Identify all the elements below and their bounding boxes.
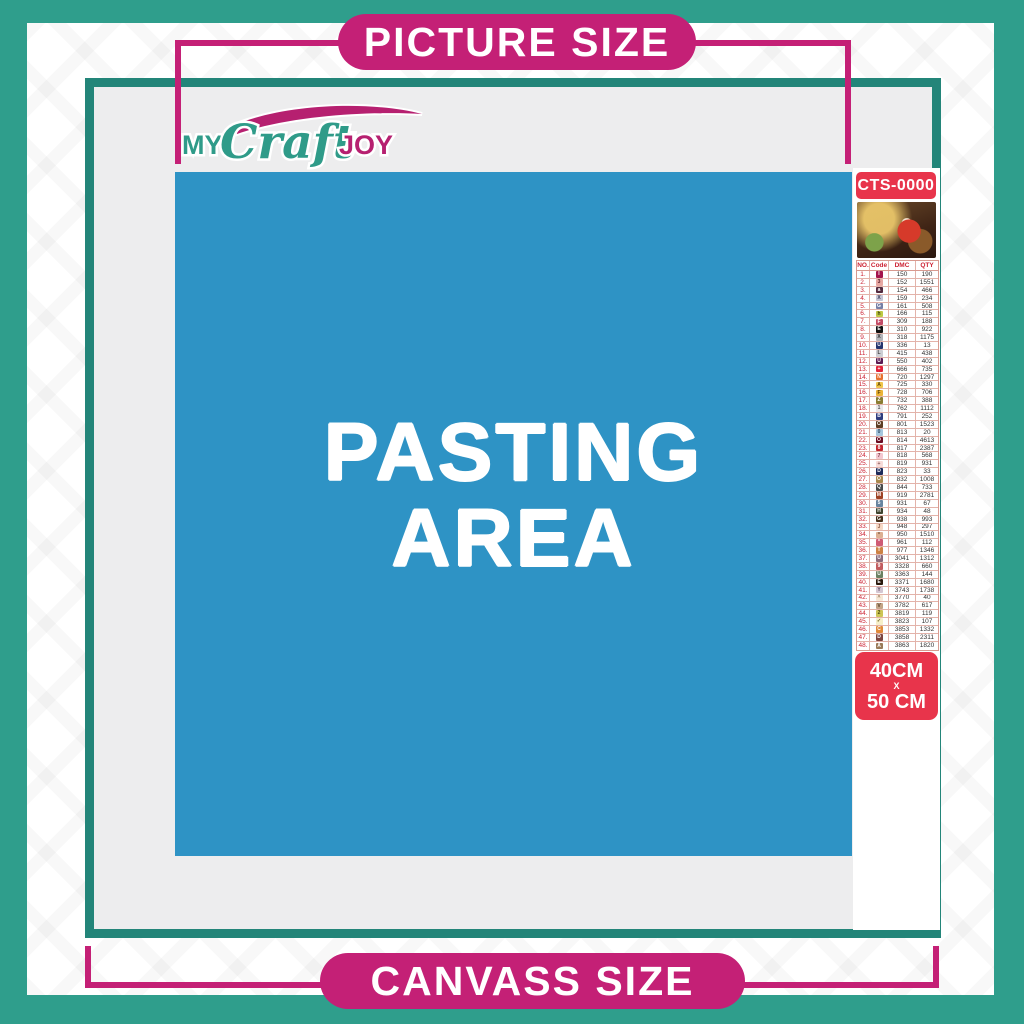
- quantity: 1346: [916, 547, 938, 554]
- color-code-cell: h: [870, 310, 889, 317]
- dmc-table-row: 5.G161508: [857, 303, 938, 311]
- dmc-number: 961: [889, 539, 916, 546]
- dmc-table-row: 13.+666735: [857, 366, 938, 374]
- dmc-table-row: 44.23819119: [857, 610, 938, 618]
- header-no: NO.: [857, 261, 870, 270]
- quantity: 115: [916, 310, 938, 317]
- row-number: 39.: [857, 571, 870, 578]
- quantity: 2387: [916, 445, 938, 452]
- color-symbol-chip: Y: [876, 587, 883, 594]
- color-symbol-chip: ✓: [876, 618, 883, 625]
- color-code-cell: V: [870, 602, 889, 609]
- color-symbol-chip: *: [876, 532, 883, 539]
- color-symbol-chip: U: [876, 571, 883, 578]
- color-symbol-chip: A: [876, 382, 883, 389]
- dmc-table-row: 46.C38531332: [857, 626, 938, 634]
- color-symbol-chip: 2: [876, 610, 883, 617]
- color-symbol-chip: h: [876, 311, 883, 318]
- row-number: 9.: [857, 334, 870, 341]
- row-number: 41.: [857, 587, 870, 594]
- color-code-cell: I: [870, 271, 889, 278]
- picture-size-banner: PICTURE SIZE: [338, 14, 696, 70]
- row-number: 44.: [857, 610, 870, 617]
- size-line1: 40CM: [870, 661, 923, 681]
- dmc-number: 3371: [889, 579, 916, 586]
- color-symbol-chip: 7: [876, 453, 883, 460]
- dmc-number: 725: [889, 381, 916, 388]
- color-code-cell: Z: [870, 397, 889, 404]
- color-symbol-chip: E: [876, 579, 883, 586]
- row-number: 16.: [857, 389, 870, 396]
- color-symbol-chip: U: [876, 342, 883, 349]
- quantity: 735: [916, 366, 938, 373]
- row-number: 5.: [857, 303, 870, 310]
- dmc-table-row: 1.I150190: [857, 271, 938, 279]
- dmc-number: 814: [889, 437, 916, 444]
- product-code-badge: CTS-0000: [856, 172, 936, 199]
- quantity: 508: [916, 303, 938, 310]
- dmc-table-row: 42.^377040: [857, 595, 938, 603]
- quantity: 660: [916, 563, 938, 570]
- row-number: 14.: [857, 374, 870, 381]
- color-code-cell: U: [870, 342, 889, 349]
- quantity: 67: [916, 500, 938, 507]
- color-code-cell: F: [870, 318, 889, 325]
- row-number: 34.: [857, 531, 870, 538]
- color-code-cell: 0: [870, 429, 889, 436]
- color-symbol-chip: 3: [876, 279, 883, 286]
- dmc-table-row: 15.A725330: [857, 381, 938, 389]
- color-code-cell: J: [870, 524, 889, 531]
- color-symbol-chip: N: [876, 374, 883, 381]
- dmc-number: 823: [889, 468, 916, 475]
- row-number: 18.: [857, 405, 870, 412]
- color-symbol-chip: E: [876, 326, 883, 333]
- dmc-table-body: 1.I1501902.315215513.a1544664.X1592345.G…: [857, 271, 938, 650]
- color-code-cell: *: [870, 531, 889, 538]
- dmc-number: 791: [889, 413, 916, 420]
- color-code-cell: G: [870, 516, 889, 523]
- dmc-table-row: 37.U30411312: [857, 555, 938, 563]
- color-symbol-chip: D: [876, 634, 883, 641]
- dmc-number: 161: [889, 303, 916, 310]
- dmc-number: 159: [889, 295, 916, 302]
- quantity: 4613: [916, 437, 938, 444]
- color-symbol-chip: O: [876, 421, 883, 428]
- quantity: 568: [916, 452, 938, 459]
- bracket-top-left-vertical: [175, 40, 181, 164]
- color-code-cell: 3: [870, 279, 889, 286]
- color-symbol-chip: +: [876, 366, 883, 373]
- mycraftjoy-logo: MY Craft JOY: [176, 98, 432, 174]
- dmc-table-row: 12.U550402: [857, 358, 938, 366]
- color-code-cell: C: [870, 626, 889, 633]
- dmc-number: 309: [889, 318, 916, 325]
- quantity: 1297: [916, 374, 938, 381]
- dmc-table-row: 38.93328660: [857, 563, 938, 571]
- color-code-cell: 8: [870, 445, 889, 452]
- dmc-table-row: 18.17621112: [857, 405, 938, 413]
- dmc-number: 819: [889, 460, 916, 467]
- row-number: 2.: [857, 279, 870, 286]
- dmc-number: 336: [889, 342, 916, 349]
- row-number: 24.: [857, 452, 870, 459]
- color-symbol-chip: X: [876, 295, 883, 302]
- header-dmc: DMC: [889, 261, 916, 270]
- quantity: 2311: [916, 634, 938, 641]
- dmc-table-row: 22.O8144613: [857, 437, 938, 445]
- quantity: 297: [916, 524, 938, 531]
- color-symbol-chip: *: [876, 539, 883, 546]
- color-code-cell: G: [870, 303, 889, 310]
- color-symbol-chip: I: [876, 271, 883, 278]
- quantity: 48: [916, 508, 938, 515]
- dmc-table-row: 25.+819931: [857, 460, 938, 468]
- dmc-number: 3328: [889, 563, 916, 570]
- row-number: 20.: [857, 421, 870, 428]
- dmc-table-row: 32.G938993: [857, 516, 938, 524]
- quantity: 33: [916, 468, 938, 475]
- color-code-cell: N: [870, 374, 889, 381]
- pasting-area-line1: PASTING: [324, 410, 703, 496]
- dmc-table-row: 47.D38582311: [857, 634, 938, 642]
- dmc-table-row: 6.h166115: [857, 310, 938, 318]
- row-number: 4.: [857, 295, 870, 302]
- dmc-number: 817: [889, 445, 916, 452]
- dmc-number: 550: [889, 358, 916, 365]
- dmc-number: 801: [889, 421, 916, 428]
- quantity: 1175: [916, 334, 938, 341]
- quantity: 733: [916, 484, 938, 491]
- color-code-cell: D: [870, 634, 889, 641]
- row-number: 23.: [857, 445, 870, 452]
- row-number: 8.: [857, 326, 870, 333]
- dmc-table-row: 24.7818568: [857, 452, 938, 460]
- color-code-cell: ^: [870, 595, 889, 602]
- color-symbol-chip: 0: [876, 429, 883, 436]
- row-number: 6.: [857, 310, 870, 317]
- bracket-top-left-horizontal: [175, 40, 347, 46]
- row-number: 19.: [857, 413, 870, 420]
- header-qty: QTY: [916, 261, 938, 270]
- row-number: 32.: [857, 516, 870, 523]
- canvas-size-badge: 40CM X 50 CM: [855, 652, 938, 720]
- dmc-table-row: 28.Q844733: [857, 484, 938, 492]
- dmc-number: 720: [889, 374, 916, 381]
- dmc-table-row: 11.L415438: [857, 350, 938, 358]
- bracket-top-right-horizontal: [688, 40, 851, 46]
- canvass-size-banner: CANVASS SIZE: [320, 953, 745, 1009]
- row-number: 36.: [857, 547, 870, 554]
- color-code-cell: X: [870, 295, 889, 302]
- color-symbol-chip: V: [876, 603, 883, 610]
- dmc-number: 666: [889, 366, 916, 373]
- dmc-number: 919: [889, 492, 916, 499]
- row-number: 43.: [857, 602, 870, 609]
- row-number: 37.: [857, 555, 870, 562]
- dmc-number: 762: [889, 405, 916, 412]
- color-symbol-chip: C: [876, 626, 883, 633]
- dmc-table-row: 16.F728706: [857, 389, 938, 397]
- dmc-number: 166: [889, 310, 916, 317]
- color-code-cell: X: [870, 334, 889, 341]
- size-line2: X: [893, 682, 899, 691]
- dmc-number: 3770: [889, 595, 916, 602]
- color-code-cell: 9: [870, 563, 889, 570]
- color-symbol-chip: G: [876, 516, 883, 523]
- dmc-table-row: 9.X3181175: [857, 334, 938, 342]
- color-symbol-chip: 5: [876, 500, 883, 507]
- pasting-area: PASTING AREA: [175, 172, 852, 856]
- quantity: 1112: [916, 405, 938, 412]
- color-code-cell: O: [870, 421, 889, 428]
- quantity: 119: [916, 610, 938, 617]
- dmc-number: 938: [889, 516, 916, 523]
- color-symbol-chip: B: [876, 413, 883, 420]
- quantity: 388: [916, 397, 938, 404]
- dmc-number: 931: [889, 500, 916, 507]
- quantity: 617: [916, 602, 938, 609]
- row-number: 28.: [857, 484, 870, 491]
- color-symbol-chip: Z: [876, 397, 883, 404]
- quantity: 922: [916, 326, 938, 333]
- row-number: 30.: [857, 500, 870, 507]
- quantity: 931: [916, 460, 938, 467]
- row-number: 15.: [857, 381, 870, 388]
- color-symbol-chip: O: [876, 437, 883, 444]
- dmc-table-row: 40.E33711680: [857, 579, 938, 587]
- row-number: 33.: [857, 524, 870, 531]
- color-symbol-chip: U: [876, 555, 883, 562]
- row-number: 38.: [857, 563, 870, 570]
- dmc-number: 3743: [889, 587, 916, 594]
- dmc-number: 3853: [889, 626, 916, 633]
- dmc-number: 3819: [889, 610, 916, 617]
- color-code-cell: 1: [870, 405, 889, 412]
- row-number: 42.: [857, 595, 870, 602]
- quantity: 112: [916, 539, 938, 546]
- dmc-number: 310: [889, 326, 916, 333]
- quantity: 13: [916, 342, 938, 349]
- dmc-number: 3823: [889, 618, 916, 625]
- logo-word-craft: Craft: [220, 115, 355, 170]
- dmc-number: 844: [889, 484, 916, 491]
- row-number: 13.: [857, 366, 870, 373]
- logo-word-joy: JOY: [339, 130, 393, 160]
- quantity: 438: [916, 350, 938, 357]
- color-code-cell: L: [870, 350, 889, 357]
- dmc-number: 150: [889, 271, 916, 278]
- color-code-cell: E: [870, 579, 889, 586]
- color-code-cell: T: [870, 547, 889, 554]
- quantity: 1332: [916, 626, 938, 633]
- dmc-table-row: 3.a154466: [857, 287, 938, 295]
- quantity: 1312: [916, 555, 938, 562]
- dmc-number: 728: [889, 389, 916, 396]
- dmc-number: 3863: [889, 642, 916, 650]
- quantity: 144: [916, 571, 938, 578]
- color-symbol-chip: 9: [876, 563, 883, 570]
- quantity: 40: [916, 595, 938, 602]
- dmc-number: 318: [889, 334, 916, 341]
- dmc-table-row: 7.F309188: [857, 318, 938, 326]
- bracket-top-right-vertical: [845, 40, 851, 164]
- dmc-table-row: 41.Y37431738: [857, 587, 938, 595]
- header-code: Code: [870, 261, 889, 270]
- dmc-table-row: 19.B791252: [857, 413, 938, 421]
- dmc-table-row: 17.Z732388: [857, 397, 938, 405]
- dmc-number: 3858: [889, 634, 916, 641]
- color-code-cell: D: [870, 468, 889, 475]
- dmc-number: 934: [889, 508, 916, 515]
- quantity: 1738: [916, 587, 938, 594]
- dmc-number: 950: [889, 531, 916, 538]
- dmc-table-row: 4.X159234: [857, 295, 938, 303]
- color-symbol-chip: ^: [876, 595, 883, 602]
- quantity: 330: [916, 381, 938, 388]
- quantity: 188: [916, 318, 938, 325]
- color-symbol-chip: M: [876, 492, 883, 499]
- color-code-cell: A: [870, 381, 889, 388]
- color-code-cell: Q: [870, 484, 889, 491]
- dmc-number: 3363: [889, 571, 916, 578]
- quantity: 466: [916, 287, 938, 294]
- quantity: 2781: [916, 492, 938, 499]
- dmc-number: 948: [889, 524, 916, 531]
- dmc-number: 732: [889, 397, 916, 404]
- dmc-number: 154: [889, 287, 916, 294]
- logo-word-my: MY: [182, 130, 223, 160]
- dmc-color-table: NO. Code DMC QTY 1.I1501902.315215513.a1…: [856, 260, 939, 651]
- quantity: 107: [916, 618, 938, 625]
- dmc-table-row: 34.*9501510: [857, 531, 938, 539]
- row-number: 40.: [857, 579, 870, 586]
- dmc-table-row: 45.✓3823107: [857, 618, 938, 626]
- pasting-area-line2: AREA: [391, 496, 635, 582]
- color-code-cell: 7: [870, 452, 889, 459]
- row-number: 10.: [857, 342, 870, 349]
- dmc-number: 818: [889, 452, 916, 459]
- row-number: 17.: [857, 397, 870, 404]
- color-code-cell: U: [870, 358, 889, 365]
- color-symbol-chip: O: [876, 476, 883, 483]
- dmc-number: 415: [889, 350, 916, 357]
- quantity: 1820: [916, 642, 938, 650]
- color-code-cell: O: [870, 476, 889, 483]
- dmc-table-row: 36.T9771346: [857, 547, 938, 555]
- quantity: 706: [916, 389, 938, 396]
- color-symbol-chip: X: [876, 334, 883, 341]
- color-symbol-chip: F: [876, 390, 883, 397]
- bracket-bottom-right-horizontal: [737, 982, 939, 988]
- dmc-table-row: 21.081320: [857, 429, 938, 437]
- color-code-cell: 2: [870, 610, 889, 617]
- dmc-table-row: 30.593167: [857, 500, 938, 508]
- row-number: 3.: [857, 287, 870, 294]
- quantity: 190: [916, 271, 938, 278]
- dmc-table-row: 35.*961112: [857, 539, 938, 547]
- dmc-number: 3041: [889, 555, 916, 562]
- bracket-bottom-left-horizontal: [85, 982, 330, 988]
- color-code-cell: O: [870, 437, 889, 444]
- color-code-cell: F: [870, 389, 889, 396]
- quantity: 1551: [916, 279, 938, 286]
- dmc-table-row: 29.M9192781: [857, 492, 938, 500]
- row-number: 45.: [857, 618, 870, 625]
- row-number: 31.: [857, 508, 870, 515]
- color-symbol-chip: H: [876, 508, 883, 515]
- color-symbol-chip: L: [876, 350, 883, 357]
- quantity: 20: [916, 429, 938, 436]
- product-thumbnail-santa-scene: [857, 202, 936, 258]
- color-symbol-chip: A: [876, 643, 883, 650]
- dmc-table-row: 31.H93448: [857, 508, 938, 516]
- row-number: 48.: [857, 642, 870, 650]
- dmc-table-row: 48.A38631820: [857, 642, 938, 650]
- color-symbol-chip: G: [876, 303, 883, 310]
- dmc-number: 832: [889, 476, 916, 483]
- color-symbol-chip: +: [876, 461, 883, 468]
- color-code-cell: M: [870, 492, 889, 499]
- dmc-table-row: 39.U3363144: [857, 571, 938, 579]
- color-code-cell: H: [870, 508, 889, 515]
- size-line3: 50 CM: [867, 692, 926, 712]
- dmc-table-row: 23.88172387: [857, 445, 938, 453]
- row-number: 21.: [857, 429, 870, 436]
- dmc-number: 152: [889, 279, 916, 286]
- dmc-table-row: 27.O8321008: [857, 476, 938, 484]
- color-symbol-chip: J: [876, 524, 883, 531]
- color-code-cell: *: [870, 539, 889, 546]
- row-number: 26.: [857, 468, 870, 475]
- quantity: 252: [916, 413, 938, 420]
- color-code-cell: a: [870, 287, 889, 294]
- color-symbol-chip: 8: [876, 445, 883, 452]
- row-number: 27.: [857, 476, 870, 483]
- dmc-table-row: 20.O8011523: [857, 421, 938, 429]
- dmc-table-header: NO. Code DMC QTY: [857, 261, 938, 271]
- row-number: 25.: [857, 460, 870, 467]
- dmc-number: 3782: [889, 602, 916, 609]
- color-code-cell: E: [870, 326, 889, 333]
- quantity: 993: [916, 516, 938, 523]
- dmc-table-row: 14.N7201297: [857, 374, 938, 382]
- dmc-number: 813: [889, 429, 916, 436]
- color-symbol-chip: T: [876, 547, 883, 554]
- color-code-cell: U: [870, 571, 889, 578]
- dmc-table-row: 33.J948297: [857, 524, 938, 532]
- color-symbol-chip: F: [876, 319, 883, 326]
- quantity: 402: [916, 358, 938, 365]
- row-number: 29.: [857, 492, 870, 499]
- row-number: 7.: [857, 318, 870, 325]
- row-number: 46.: [857, 626, 870, 633]
- color-symbol-chip: a: [876, 287, 883, 294]
- color-code-cell: Y: [870, 587, 889, 594]
- row-number: 22.: [857, 437, 870, 444]
- color-code-cell: 5: [870, 500, 889, 507]
- color-code-cell: A: [870, 642, 889, 650]
- dmc-table-row: 26.D82333: [857, 468, 938, 476]
- color-code-cell: ✓: [870, 618, 889, 625]
- row-number: 47.: [857, 634, 870, 641]
- quantity: 1523: [916, 421, 938, 428]
- color-code-cell: +: [870, 366, 889, 373]
- color-code-cell: +: [870, 460, 889, 467]
- quantity: 1008: [916, 476, 938, 483]
- dmc-table-row: 8.E310922: [857, 326, 938, 334]
- dmc-table-row: 2.31521551: [857, 279, 938, 287]
